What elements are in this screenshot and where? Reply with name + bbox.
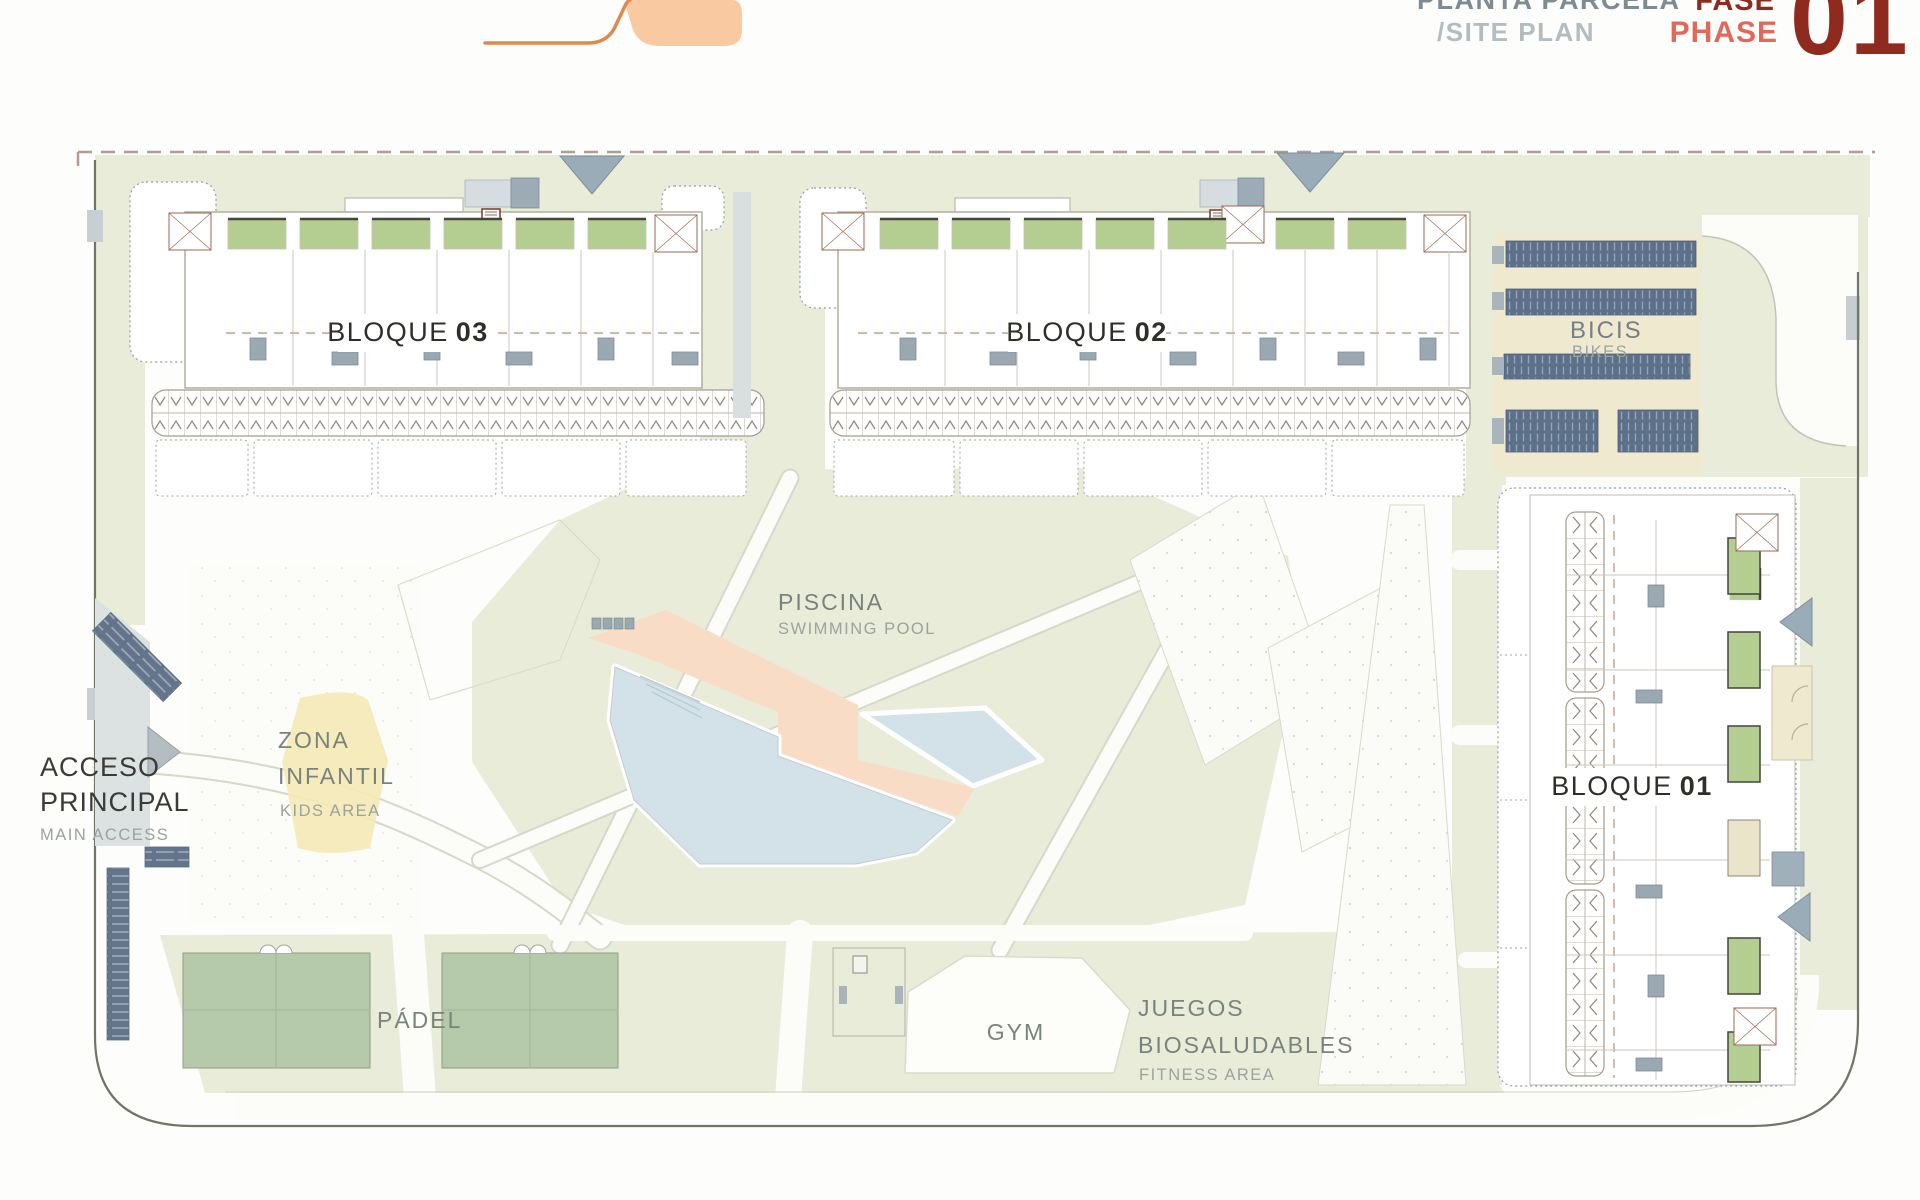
elevator-core-icon <box>655 215 697 252</box>
kids-label-line2: INFANTIL <box>278 763 395 789</box>
roof-box-dark-b02 <box>1238 178 1264 208</box>
elevator-core-icon <box>169 213 211 250</box>
elevator-core-icon <box>1424 215 1466 252</box>
access-label-line1: ACCESO <box>40 752 160 782</box>
rack-tab <box>1492 292 1504 310</box>
phase-label-en: PHASE <box>1670 16 1778 49</box>
gym-label: GYM <box>987 1019 1045 1045</box>
access-sublabel: MAIN ACCESS <box>40 826 169 844</box>
kids-label-line1: ZONA <box>278 727 350 753</box>
page-title: PLANTA PARCELA <box>1417 0 1681 15</box>
phase-label-es: FASE <box>1695 0 1775 17</box>
bikes-sublabel: BIKES <box>1572 343 1628 361</box>
pool-sublabel: SWIMMING POOL <box>778 620 936 638</box>
gardens-b02 <box>880 219 1406 249</box>
elevator-core-icon <box>1736 514 1778 551</box>
bloque-01-label: BLOQUE01 <box>1551 771 1713 801</box>
balcony-strip-b03 <box>152 390 764 436</box>
access-label-line2: PRINCIPAL <box>40 787 190 817</box>
page-subtitle: /SITE PLAN <box>1437 17 1595 47</box>
equipment-icon <box>853 956 867 973</box>
logo-line <box>485 0 630 43</box>
elevator-core-icon <box>1734 1008 1776 1045</box>
logo-shape <box>626 0 742 46</box>
elevator-core-icon <box>1222 206 1264 243</box>
padel-court-2 <box>442 945 618 1068</box>
logo-mark <box>485 0 742 46</box>
curb-mark-left-1 <box>87 210 103 242</box>
rack-tab <box>1492 246 1504 264</box>
header: PLANTA PARCELA /SITE PLAN FASE PHASE 01 <box>485 0 1910 77</box>
equipment-bar <box>895 986 903 1004</box>
roof-box-light-b02 <box>1200 180 1238 207</box>
parking-strip-vertical <box>107 868 129 1040</box>
terrace-plots-b03 <box>156 440 746 496</box>
bikes-label: BICIS <box>1570 317 1643 344</box>
gym-pad <box>905 956 1130 1073</box>
fitness-label-line2: BIOSALUDABLES <box>1138 1032 1354 1058</box>
fitness-sublabel: FITNESS AREA <box>1139 1066 1275 1084</box>
terrace-plots-b02 <box>834 440 1464 496</box>
balcony-strip-b02 <box>830 390 1470 436</box>
kids-sublabel: KIDS AREA <box>280 802 381 820</box>
bloque-02-label: BLOQUE02 <box>1006 317 1168 347</box>
service-box-b01 <box>1772 852 1804 886</box>
padel-label: PÁDEL <box>377 1007 462 1033</box>
rack-tab <box>1492 357 1504 375</box>
roof-box-light-b03 <box>465 180 511 207</box>
fitness-label-line1: JUEGOS <box>1138 995 1245 1021</box>
phase-number: 01 <box>1790 0 1910 77</box>
site-plan-page: BLOQUE03 BLOQUE02 BLOQUE01 BICIS BIKES P… <box>0 0 1920 1200</box>
rack-tab <box>1492 418 1504 444</box>
bloque-03-label: BLOQUE03 <box>327 317 489 347</box>
elevator-core-icon <box>822 213 864 250</box>
site-plan-drawing: BLOQUE03 BLOQUE02 BLOQUE01 BICIS BIKES P… <box>0 0 1920 1200</box>
entry-court-b01 <box>1772 666 1812 760</box>
padel-court-1 <box>183 945 370 1068</box>
pool-label: PISCINA <box>778 589 884 615</box>
roof-box-dark-b03 <box>511 178 539 208</box>
parking-strip-horizontal <box>145 847 189 867</box>
equipment-bar <box>839 986 847 1004</box>
road-strip-between-blocks <box>733 192 751 418</box>
